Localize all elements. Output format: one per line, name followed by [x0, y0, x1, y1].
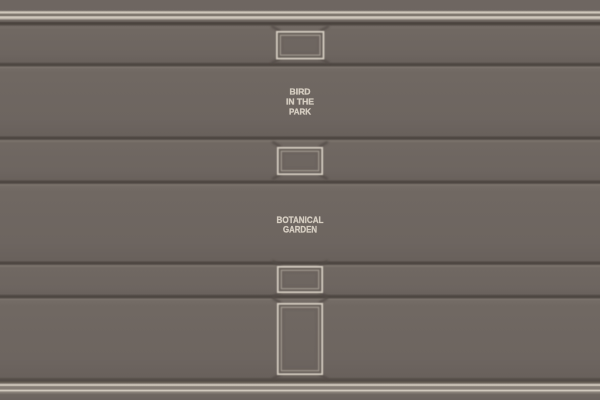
svg-text:IN THE: IN THE [286, 97, 314, 107]
svg-text:PARK: PARK [289, 107, 311, 117]
svg-text:GARDEN: GARDEN [283, 225, 317, 236]
svg-text:BIRD: BIRD [290, 87, 311, 97]
